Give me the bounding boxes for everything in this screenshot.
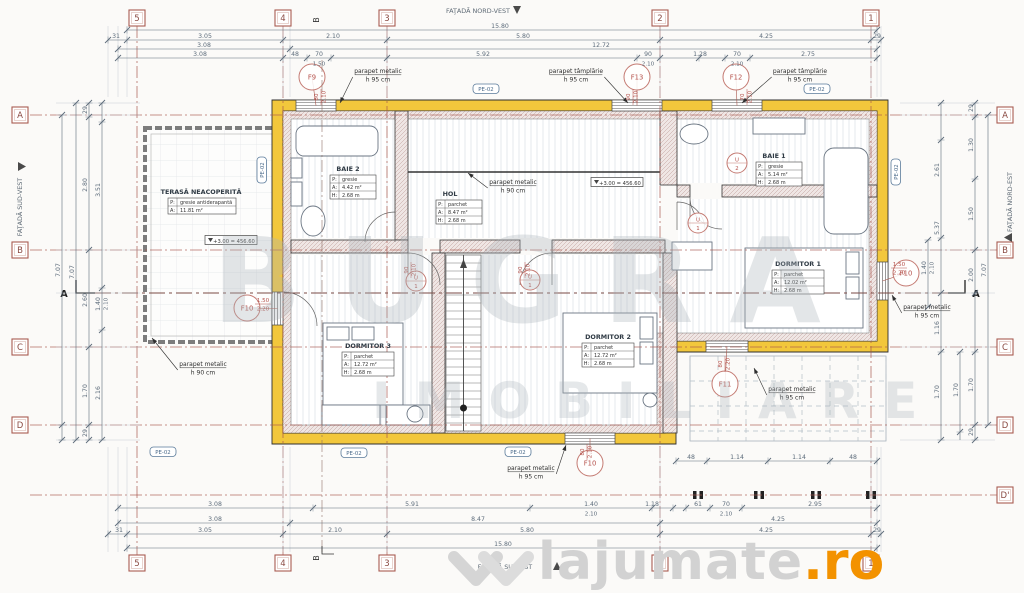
dim-row: 3.0848701.505.92902.101.28702.102.75: [115, 51, 880, 68]
grid-marker-5: 5: [129, 555, 145, 571]
dim-label: 1.28: [693, 51, 707, 58]
dim-row: 481.141.1448: [673, 454, 880, 465]
grid-marker-A: A: [997, 107, 1013, 123]
counter-baie1: [753, 118, 805, 134]
dim-label: 1.70: [82, 384, 89, 398]
level-value: +3.00 = 456.60: [599, 181, 641, 187]
sink-baie2: [291, 158, 302, 178]
facade-left-arrow: [18, 162, 26, 171]
grid-marker-label: B: [17, 246, 23, 256]
dim-label: 2.10: [326, 33, 340, 40]
red-dim-value: 2.10: [588, 445, 594, 458]
leader-arrowhead: [892, 295, 896, 301]
dim-label: 1.70: [953, 383, 960, 397]
red-dim-value: 2.10: [322, 90, 328, 103]
window-mark-label: F13: [631, 73, 644, 81]
room-row-value: 2.68 m: [768, 180, 786, 186]
door-mark-label: 1: [696, 226, 699, 232]
dim-label: 29: [873, 527, 881, 534]
dim-label: 31: [115, 527, 123, 534]
dim-row: 15.80: [124, 541, 880, 552]
dim-col: 1.70: [953, 349, 964, 440]
dim-label: 4.25: [771, 516, 785, 523]
parapet-text: parapet tâmplărie: [773, 68, 828, 75]
room-row-value: 4.42 m²: [342, 185, 362, 191]
door-mark-label: 2: [735, 166, 738, 172]
parapet-label: parapet metalich 95 cm: [892, 295, 951, 320]
red-dim-value: 90: [404, 266, 410, 274]
room-row-value: 2.68 m: [342, 193, 360, 199]
red-dim-value: 2.10: [412, 263, 418, 276]
dim-label: 2.10: [328, 527, 342, 534]
door-mark-label: U: [735, 158, 739, 164]
parapet-height: h 95 cm: [366, 77, 391, 84]
facade-top-arrow: [513, 6, 521, 14]
parapet-height: h 95 cm: [915, 313, 940, 320]
dim-label: 1.40: [921, 261, 928, 275]
parapet-text: parapet metalic: [354, 68, 402, 75]
dim-label: 70: [722, 501, 730, 508]
room-row-key: P:: [584, 345, 589, 351]
dim-col: 3.511.402.102.16: [95, 100, 110, 443]
dim-label: 5.37: [934, 221, 941, 235]
grid-marker-3: 3: [379, 10, 395, 26]
dim-label: 5.80: [520, 527, 534, 534]
dim-sublabel: 2.10: [104, 297, 110, 310]
red-dim-value: 90: [626, 93, 632, 101]
room-name: DORMITOR 3: [345, 342, 391, 350]
dim-label: 1.50: [968, 207, 975, 221]
dim-label: 15.80: [491, 23, 509, 30]
red-dim-value: 80: [314, 93, 320, 101]
dim-label: 2.00: [968, 268, 975, 282]
room-row-key: P:: [170, 200, 175, 206]
room-row-key: H:: [774, 288, 780, 294]
room-row-key: A:: [584, 353, 589, 359]
window-mark-label: F11: [719, 380, 732, 388]
dim-label: 90: [644, 51, 652, 58]
room-row-key: A:: [774, 280, 779, 286]
dim-row: 313.052.105.804.2529: [105, 33, 884, 44]
dim-label: 15.80: [494, 541, 512, 548]
room-row-value: gresie: [768, 164, 783, 170]
element-badge: PE-02: [341, 448, 367, 458]
parapet-height: h 95 cm: [780, 395, 805, 402]
grid-marker-label: 3: [384, 559, 389, 569]
room-name: BAIE 1: [762, 152, 785, 160]
facade-right: FAŢADĂ NORD-EST: [1005, 172, 1014, 232]
red-dim-value: 80: [580, 448, 586, 456]
section-label: A: [60, 289, 68, 300]
room-row-value: 8.47 m²: [448, 210, 468, 216]
red-dim-value: 2.10: [526, 263, 532, 276]
room-row-key: P:: [344, 354, 349, 360]
room-dormitor-1: DORMITOR 1P:parchetA:12.02 m²H:2.68 m: [772, 260, 824, 294]
red-dim-value: 2.20: [893, 271, 906, 277]
dim-label: 7.07: [55, 263, 62, 277]
parapet-text: parapet metalic: [179, 361, 227, 368]
grid-marker-4: 4: [275, 555, 291, 571]
dim-sublabel: 2.10: [720, 512, 733, 518]
room-row-value: parchet: [784, 272, 803, 278]
dim-col: 7.07: [69, 100, 80, 443]
stool-dormitor3: [407, 406, 423, 422]
grid-marker-label: 2: [657, 559, 662, 569]
room-row-key: P:: [758, 164, 763, 170]
parapet-height: h 90 cm: [191, 370, 216, 377]
dim-label: 4.25: [759, 33, 773, 40]
grid-marker-D': D': [997, 487, 1013, 503]
door-mark-label: 1: [414, 284, 417, 290]
dim-label: 3.08: [197, 42, 211, 49]
bathtub-baie2: [296, 126, 378, 156]
dim-label: 3.51: [95, 183, 102, 197]
red-dim-value: 2.10: [634, 90, 640, 103]
element-badge-label: PE-02: [155, 450, 170, 456]
dim-label: 1.70: [934, 385, 941, 399]
stair-start-dot: [460, 405, 467, 412]
room-dormitor-3: DORMITOR 3P:parchetA:12.72 m²H:2.68 m: [342, 342, 394, 376]
level-badge: +3.00 = 456.60: [591, 178, 643, 187]
dim-col: 1.402.10: [921, 237, 936, 310]
grid-marker-label: B: [1002, 246, 1008, 256]
dim-label: 1.30: [968, 138, 975, 152]
dim-row: 313.052.105.804.2529: [105, 527, 884, 538]
room-row-value: 2.68 m: [354, 370, 372, 376]
grid-marker-label: 1: [868, 14, 873, 24]
grid-marker-label: D: [17, 421, 24, 431]
dim-label: 5.80: [516, 33, 530, 40]
room-row-key: A:: [170, 208, 175, 214]
red-dim-value: 2.10: [748, 90, 754, 103]
element-badge-label: PE-02: [510, 450, 525, 456]
window-mark-label: F12: [730, 73, 743, 81]
dim-label: 12.72: [592, 42, 610, 49]
grid-marker-1: 1: [863, 10, 879, 26]
dim-label: 3.05: [198, 527, 212, 534]
dim-label: 1.40: [584, 501, 598, 508]
dresser-dormitor3: [322, 405, 380, 425]
interior-wall: [663, 253, 677, 433]
dim-label: 1.18: [645, 501, 659, 508]
parapet-label: parapet metalich 95 cm: [754, 368, 816, 402]
grid-marker-b: B: [312, 17, 321, 23]
element-badge-label: PE-02: [346, 451, 361, 457]
dim-row: 15.80: [124, 23, 880, 34]
room-row-key: H:: [584, 361, 590, 367]
grid-marker-4: 4: [275, 10, 291, 26]
cabinet-dormitor1: [672, 242, 712, 270]
red-dim-value: 70: [740, 93, 746, 101]
dim-row: 3.085.911.402.101.1861702.102.95: [115, 501, 880, 518]
grid-marker-label: 2: [657, 14, 662, 24]
grid-marker-label: 4: [280, 559, 285, 569]
element-badge: PE-02: [505, 447, 531, 457]
room-row-value: 11.81 m²: [180, 208, 203, 214]
dim-col: 7.07: [55, 112, 66, 443]
grid-marker-D: D: [997, 417, 1013, 433]
grid-marker-label: D': [1001, 491, 1010, 501]
grid-marker-3: 3: [379, 555, 395, 571]
room-row-key: A:: [758, 172, 763, 178]
dim-label: 2.60: [82, 293, 89, 307]
window-mark-label: F9: [308, 73, 316, 81]
room-row-key: H:: [758, 180, 764, 186]
element-badge: PE-02: [891, 159, 901, 185]
dim-label: 1.40: [95, 297, 102, 311]
dim-label: 61: [694, 501, 702, 508]
dim-label: 3.05: [198, 33, 212, 40]
door-mark-U2: U2: [727, 153, 747, 173]
parapet-text: parapet metalic: [768, 386, 816, 393]
dim-label: 5.91: [405, 501, 419, 508]
dim-label: 7.07: [69, 265, 76, 279]
floor-plan-drawing: F9F13F12F10F10F11F10U1U1U2U1AA15.80313.0…: [0, 0, 1024, 593]
parapet-label: parapet metalich 95 cm: [340, 68, 402, 103]
room-row-key: P:: [332, 177, 337, 183]
room-row-value: 12.72 m²: [354, 362, 377, 368]
dim-label: 29: [968, 428, 975, 436]
room-row-value: 2.68 m: [448, 218, 466, 224]
facade-top: FAŢADĂ NORD-VEST: [446, 6, 510, 15]
room-name: TERASĂ NEACOPERITĂ: [161, 187, 242, 196]
window-f9: F9: [296, 64, 336, 111]
dim-label: 48: [849, 454, 857, 461]
room-name: DORMITOR 1: [775, 260, 821, 268]
grid-marker-B: B: [997, 242, 1013, 258]
dim-col: 292.802.601.7029: [82, 100, 93, 443]
element-badge: PE-02: [257, 157, 267, 183]
grid-marker-label: A: [1002, 111, 1008, 121]
grid-marker-label: 1: [868, 559, 873, 569]
level-value: +3.00 = 456.60: [213, 239, 255, 245]
room-name: DORMITOR 2: [585, 333, 631, 341]
dim-label: 4.25: [759, 527, 773, 534]
red-dim-value: 2.20: [726, 357, 732, 370]
room-row-key: H:: [332, 193, 338, 199]
stool-dormitor2: [643, 393, 657, 407]
interior-wall: [432, 253, 445, 433]
room-row-value: 5.14 m²: [768, 172, 788, 178]
element-badge-label: PE-02: [894, 164, 900, 179]
room-row-value: gresie: [342, 177, 357, 183]
room-row-value: 12.72 m²: [594, 353, 617, 359]
dim-label: 29: [82, 429, 89, 437]
room-row-key: A:: [438, 210, 443, 216]
grid-marker-2: 2: [652, 555, 668, 571]
facade-bottom: FAŢADĂ SUD-EST: [478, 562, 533, 571]
cabinet-baie2: [291, 182, 302, 206]
dim-label: 2.95: [808, 501, 822, 508]
room-row-key: P:: [438, 202, 443, 208]
red-dim-value: 2.20: [257, 307, 270, 313]
grid-marker-label: 4: [280, 14, 285, 24]
interior-wall: [440, 240, 520, 253]
grid-marker-b: B: [312, 555, 321, 561]
dim-label: 3.08: [208, 501, 222, 508]
element-badge-label: PE-02: [260, 162, 266, 177]
room-row-value: parchet: [594, 345, 613, 351]
room-row-key: H:: [438, 218, 444, 224]
parapet-text: parapet metalic: [489, 179, 537, 186]
room-row-value: 2.68 m: [594, 361, 612, 367]
room-row-value: parchet: [354, 354, 373, 360]
interior-wall: [395, 111, 408, 240]
red-dim-value: 90: [518, 266, 524, 274]
dim-label: 1.70: [968, 378, 975, 392]
window-f12: F12: [712, 64, 762, 111]
room-row-key: A:: [332, 185, 337, 191]
room-name: BAIE 2: [336, 165, 359, 173]
grid-marker-C: C: [997, 339, 1013, 355]
dim-label: 2.61: [934, 163, 941, 177]
red-dim-value: 1.50: [893, 262, 906, 268]
interior-wall: [291, 240, 408, 253]
dim-sublabel: 1.50: [313, 62, 326, 68]
parapet-text: parapet metalic: [903, 304, 951, 311]
dim-label: 2.16: [95, 386, 102, 400]
dim-label: 5.92: [476, 51, 490, 58]
room-row-key: A:: [344, 362, 349, 368]
leader-arrowhead: [754, 368, 758, 374]
parapet-height: h 95 cm: [564, 77, 589, 84]
dim-col: 2.615.371.161.70: [934, 100, 945, 443]
dim-label: 7.07: [981, 263, 988, 277]
dim-label: 2.80: [82, 178, 89, 192]
dim-label: 1.14: [792, 454, 806, 461]
grid-marker-label: C: [1002, 343, 1008, 353]
level-badge: +3.00 = 456.60: [205, 236, 257, 245]
grid-marker-1: 1: [863, 555, 879, 571]
dim-label: 29: [968, 104, 975, 112]
grid-marker-B: B: [12, 242, 28, 258]
room-row-value: 12.02 m²: [784, 280, 807, 286]
dim-sublabel: 2.10: [731, 62, 744, 68]
leader-arrowhead: [562, 445, 566, 451]
door-mark-label: 1: [528, 283, 531, 289]
dim-col: 7.07: [981, 112, 992, 428]
facade-bottom-arrow: [553, 562, 561, 570]
grid-marker-A: A: [12, 107, 28, 123]
dim-col: 291.301.502.001.7029: [968, 100, 979, 443]
grid-marker-label: 5: [134, 14, 139, 24]
dim-label: 70: [315, 51, 323, 58]
dim-sublabel: 2.10: [642, 62, 655, 68]
parapet-height: h 95 cm: [788, 77, 813, 84]
element-badge: PE-02: [804, 84, 830, 94]
room-dormitor-2: DORMITOR 2P:parchetA:12.72 m²H:2.68 m: [582, 333, 634, 367]
room-row-value: parchet: [448, 202, 467, 208]
parapet-label: parapet tâmplărieh 95 cm: [549, 68, 628, 103]
dim-label: 1.16: [934, 321, 941, 335]
door-mark-U1: U1: [688, 213, 708, 233]
grid-marker-label: A: [17, 111, 23, 121]
window-mark-label: F10: [584, 459, 597, 467]
dim-label: 70: [733, 51, 741, 58]
dim-label: 29: [873, 33, 881, 40]
interior-wall: [660, 111, 677, 185]
red-dim-value: 1.50: [257, 298, 270, 304]
parapet-text: parapet metalic: [507, 465, 555, 472]
dim-label: 2.75: [801, 51, 815, 58]
sink-baie1: [680, 124, 708, 144]
dim-label: 3.08: [208, 516, 222, 523]
room-terasă-neacoperită: TERASĂ NEACOPERITĂP:gresie antiderapantă…: [161, 187, 242, 214]
grid-marker-5: 5: [129, 10, 145, 26]
dim-sublabel: 2.10: [585, 512, 598, 518]
parapet-height: h 95 cm: [519, 474, 544, 481]
parapet-text: parapet tâmplărie: [549, 68, 604, 75]
grid-marker-label: 5: [134, 559, 139, 569]
dim-label: 1.14: [730, 454, 744, 461]
room-name: HOL: [443, 190, 458, 198]
facade-right-arrow: [1004, 233, 1012, 242]
door-mark-label: U: [696, 218, 700, 224]
room-row-value: 2.68 m: [784, 288, 802, 294]
element-badge: PE-02: [473, 84, 499, 94]
grid-marker-label: C: [17, 343, 23, 353]
parapet-height: h 90 cm: [501, 188, 526, 195]
room-row-value: gresie antiderapantă: [180, 200, 232, 206]
dim-row: 3.088.474.25: [115, 516, 880, 527]
dim-label: 31: [112, 33, 120, 40]
window-mark-label: F10: [241, 304, 254, 312]
interior-wall: [677, 185, 690, 197]
room-row-key: H:: [344, 370, 350, 376]
element-badge-label: PE-02: [809, 87, 824, 93]
element-badge: PE-02: [150, 447, 176, 457]
grid-marker-D: D: [12, 417, 28, 433]
red-dim: 802.20: [718, 356, 732, 372]
dim-row: 3.0812.72: [115, 42, 880, 53]
grid-marker-label: D: [1002, 421, 1009, 431]
interior-wall: [552, 240, 665, 253]
element-badge-label: PE-02: [478, 87, 493, 93]
dim-label: 3.08: [193, 51, 207, 58]
grid-marker-2: 2: [652, 10, 668, 26]
bathtub-baie1: [824, 148, 868, 234]
dim-sublabel: 2.10: [930, 261, 936, 274]
dim-label: 48: [687, 454, 695, 461]
dim-label: 8.47: [471, 516, 485, 523]
toilet-baie2: [301, 206, 325, 236]
dim-label: 48: [291, 51, 299, 58]
room-row-key: P:: [774, 272, 779, 278]
grid-marker-label: 3: [384, 14, 389, 24]
facade-left: FAŢADĂ SUD-VEST: [15, 178, 24, 237]
dim-label: 29: [82, 106, 89, 114]
staircase: [446, 255, 481, 431]
floor-plan-page: F9F13F12F10F10F11F10U1U1U2U1AA15.80313.0…: [0, 0, 1024, 593]
red-dim-value: 80: [718, 360, 724, 368]
grid-marker-C: C: [12, 339, 28, 355]
